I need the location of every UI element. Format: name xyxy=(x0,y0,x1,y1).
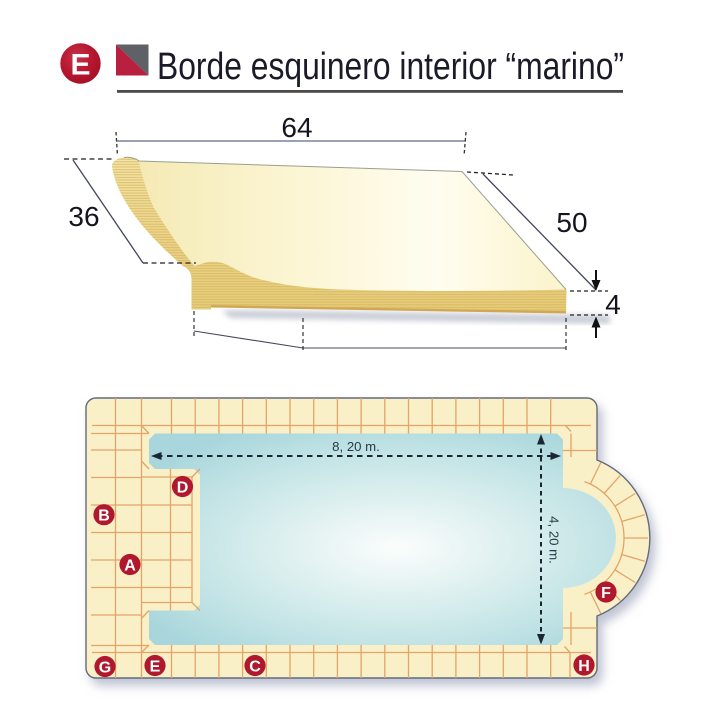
svg-text:36: 36 xyxy=(68,201,99,232)
svg-text:4, 20 m.: 4, 20 m. xyxy=(547,516,562,564)
svg-text:B: B xyxy=(98,508,110,525)
svg-text:E: E xyxy=(70,49,90,82)
svg-text:G: G xyxy=(99,659,111,676)
svg-text:Borde esquinero interior “mari: Borde esquinero interior “marino” xyxy=(157,46,624,88)
svg-text:8, 20 m.: 8, 20 m. xyxy=(332,439,380,454)
svg-text:D: D xyxy=(177,479,189,496)
svg-text:50: 50 xyxy=(556,207,587,238)
svg-text:64: 64 xyxy=(281,112,312,143)
svg-text:A: A xyxy=(124,557,136,574)
svg-text:E: E xyxy=(150,658,161,675)
svg-text:C: C xyxy=(249,658,261,675)
svg-text:H: H xyxy=(578,658,590,675)
svg-text:4: 4 xyxy=(605,289,621,320)
svg-text:F: F xyxy=(601,585,611,602)
